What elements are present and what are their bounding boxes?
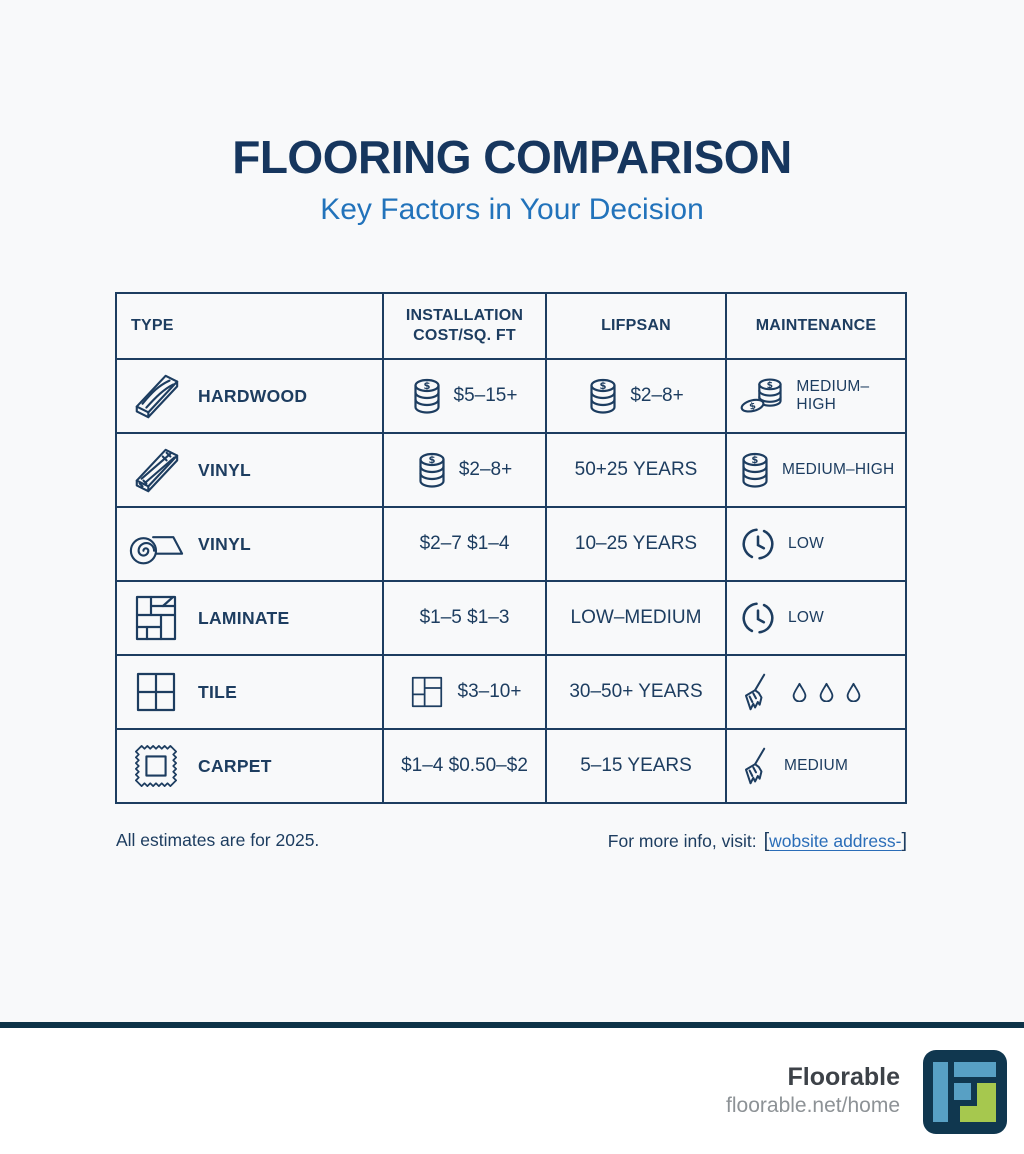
header-maintenance: MAINTENANCE xyxy=(725,294,905,358)
vinyl-roll-icon xyxy=(127,520,185,568)
table-cell-hardwood-lifespan: $2–8+ xyxy=(545,358,725,432)
table-cell-laminate-cost: $1–5 $1–3 xyxy=(382,580,545,654)
table-cell-carpet-lifespan: 5–15 YEARS xyxy=(545,728,725,802)
carpet-swatch-icon xyxy=(127,741,185,791)
coin-stack-icon xyxy=(740,450,770,490)
website-address-link[interactable]: wobsite address- xyxy=(769,831,901,851)
brand-block: Floorable floorable.net/home xyxy=(726,1062,900,1119)
water-droplets xyxy=(792,682,861,702)
page-subtitle: Key Factors in Your Decision xyxy=(0,193,1024,227)
cost-value: $2–8+ xyxy=(459,459,512,481)
clock-icon xyxy=(740,526,776,562)
table-cell-tile-lifespan: 30–50+ YEARS xyxy=(545,654,725,728)
droplet-icon xyxy=(819,682,834,702)
cost-value: $2–7 $1–4 xyxy=(420,533,510,555)
type-label: VINYL xyxy=(198,534,251,555)
table-cell-vinyl-plank-maintenance: MEDIUM–HIGH xyxy=(725,432,905,506)
table-cell-vinyl-roll-maintenance: LOW xyxy=(725,506,905,580)
header-type: TYPE xyxy=(117,294,382,358)
table-cell-vinyl-roll-cost: $2–7 $1–4 xyxy=(382,506,545,580)
table-cell-carpet-cost: $1–4 $0.50–$2 xyxy=(382,728,545,802)
tile-offset-icon xyxy=(408,673,446,711)
type-label: CARPET xyxy=(198,756,272,777)
table-row-carpet-type: CARPET xyxy=(117,728,382,802)
maintenance-value: LOW xyxy=(788,609,824,627)
hardwood-plank-icon xyxy=(127,371,185,421)
infographic-canvas: $ $ $ xyxy=(0,0,1024,1154)
clock-icon xyxy=(740,600,776,636)
maintenance-value: MEDIUM–HIGH xyxy=(796,378,905,414)
table-cell-vinyl-plank-cost: $2–8+ xyxy=(382,432,545,506)
floorable-logo xyxy=(922,1049,1008,1135)
comparison-table: TYPE INSTALLATION COST/SQ. FT LIFPSAN MA… xyxy=(115,292,907,804)
lifespan-value: LOW–MEDIUM xyxy=(571,607,702,629)
laminate-parquet-icon xyxy=(127,594,185,642)
lifespan-value: 30–50+ YEARS xyxy=(569,681,702,703)
type-label: TILE xyxy=(198,682,237,703)
broom-icon xyxy=(740,746,772,786)
broom-icon xyxy=(740,672,772,712)
cost-value: $1–5 $1–3 xyxy=(420,607,510,629)
vinyl-plank-icon xyxy=(127,445,185,495)
table-cell-carpet-maintenance: MEDIUM xyxy=(725,728,905,802)
droplet-icon xyxy=(792,682,807,702)
maintenance-value: LOW xyxy=(788,535,824,553)
lifespan-value: $2–8+ xyxy=(630,385,683,407)
table-cell-vinyl-roll-lifespan: 10–25 YEARS xyxy=(545,506,725,580)
link-close-bracket: ] xyxy=(901,830,907,852)
lifespan-value: 50+25 YEARS xyxy=(575,459,698,481)
more-info-prefix: For more info, visit: xyxy=(608,831,757,851)
cost-value: $5–15+ xyxy=(454,385,518,407)
table-row-vinyl-roll-type: VINYL xyxy=(117,506,382,580)
table-row-tile-type: TILE xyxy=(117,654,382,728)
lifespan-value: 10–25 YEARS xyxy=(575,533,697,555)
cost-value: $3–10+ xyxy=(458,681,522,703)
coin-stack-icon xyxy=(417,450,447,490)
table-cell-tile-maintenance xyxy=(725,654,905,728)
table-cell-laminate-lifespan: LOW–MEDIUM xyxy=(545,580,725,654)
table-cell-hardwood-maintenance: MEDIUM–HIGH xyxy=(725,358,905,432)
coin-stack-icon xyxy=(588,376,618,416)
table-cell-tile-cost: $3–10+ xyxy=(382,654,545,728)
page-title: FLOORING COMPARISON xyxy=(0,130,1024,184)
type-label: HARDWOOD xyxy=(198,386,307,407)
table-cell-laminate-maintenance: LOW xyxy=(725,580,905,654)
footnote-more-info: For more info, visit:[wobsite address-] xyxy=(608,830,907,853)
table-row-hardwood-type: HARDWOOD xyxy=(117,358,382,432)
brand-name: Floorable xyxy=(726,1062,900,1092)
tile-icon xyxy=(127,668,185,716)
table-row-vinyl-plank-type: VINYL xyxy=(117,432,382,506)
footnote-estimates: All estimates are for 2025. xyxy=(116,830,319,851)
header-installation-cost: INSTALLATION COST/SQ. FT xyxy=(382,294,545,358)
table-row-laminate-type: LAMINATE xyxy=(117,580,382,654)
header-lifespan: LIFPSAN xyxy=(545,294,725,358)
type-label: LAMINATE xyxy=(198,608,290,629)
droplet-icon xyxy=(846,682,861,702)
coin-pile-icon xyxy=(740,376,784,416)
coin-stack-icon xyxy=(412,376,442,416)
table-cell-hardwood-cost: $5–15+ xyxy=(382,358,545,432)
table-cell-vinyl-plank-lifespan: 50+25 YEARS xyxy=(545,432,725,506)
maintenance-value: MEDIUM–HIGH xyxy=(782,461,894,479)
brand-url[interactable]: floorable.net/home xyxy=(726,1092,900,1119)
type-label: VINYL xyxy=(198,460,251,481)
maintenance-value: MEDIUM xyxy=(784,757,848,775)
cost-value: $1–4 $0.50–$2 xyxy=(401,755,528,777)
lifespan-value: 5–15 YEARS xyxy=(580,755,692,777)
